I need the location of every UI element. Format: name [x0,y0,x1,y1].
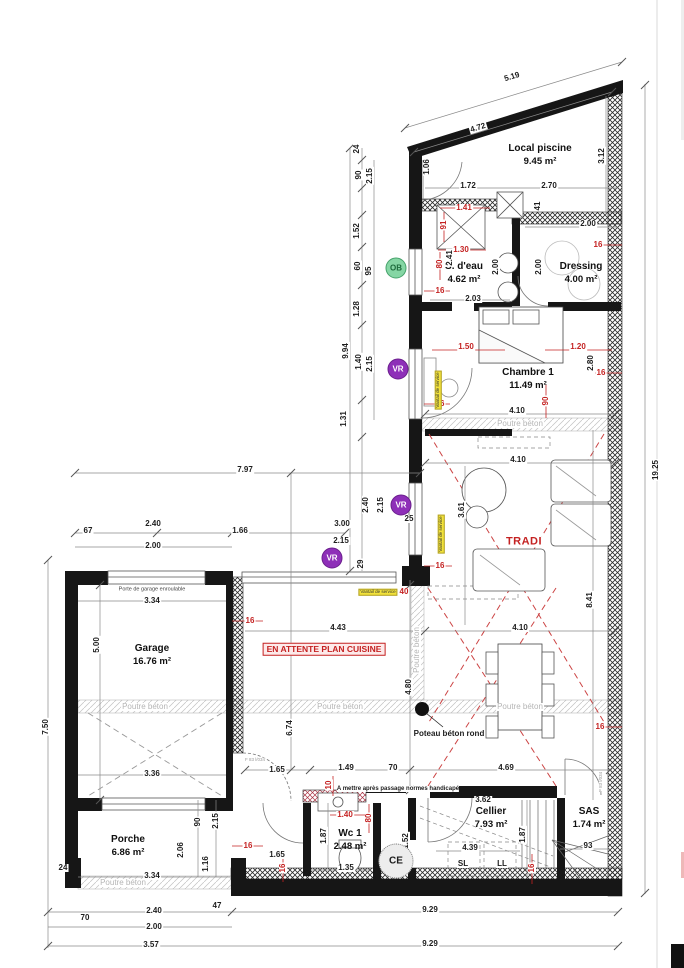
room-label: SAS1.74 m² [573,806,606,830]
concrete-post-note: Poteau béton rond [414,730,485,738]
dimension-label: 90 [355,170,363,181]
dimension-label: 1.65 [268,851,286,859]
beam-label: Poutre béton [316,703,364,711]
dimension-label: 4.80 [405,678,413,696]
room-area: 4.62 m² [445,273,483,285]
red-dimension-label: 16 [243,842,254,850]
dimension-label: 9.94 [342,342,350,360]
dimension-label: 9.29 [421,906,439,914]
dimension-label: 2.15 [366,355,374,373]
dimension-label: 4.39 [461,844,479,852]
dimension-label: 25 [404,515,415,523]
dimension-label: 5.19 [502,71,521,84]
red-dimension-label: 16 [435,562,446,570]
accessibility-note: A mettre après passage normes handicapé [337,786,459,792]
dimension-label: 1.06 [423,158,431,176]
room-name: Porche [111,834,145,847]
dimension-label: 7.50 [42,718,50,736]
dimension-label: 2.40 [362,496,370,514]
dimension-label: 4.69 [497,764,515,772]
room-name: Wc 1 [334,828,367,841]
dimension-label: 3.57 [142,941,160,949]
dimension-label: 93 [583,842,594,850]
dimension-label: 2.70 [540,182,558,190]
dimension-label: 2.15 [332,537,350,545]
dimension-label: 1.35 [337,864,355,872]
dimension-label: 2.80 [587,354,595,372]
room-area: 2.48 m² [334,840,367,852]
room-name: SAS [573,806,606,819]
beam-label: Poutre béton [413,626,421,674]
dimension-label: 95 [365,266,373,277]
red-dimension-label: 1.50 [457,343,475,351]
dimension-label: 19.25 [652,459,660,481]
dimension-label: 4.72 [468,122,487,135]
dimension-label: 24 [353,144,361,155]
garage-door-note: Porte de garage enroulable [119,587,186,593]
dimension-label: 2.03 [464,295,482,303]
red-dimension-label: 80 [436,259,444,270]
dimension-label: 3.61 [458,501,466,519]
red-dimension-label: 1.20 [569,343,587,351]
room-label: Garage16.76 m² [133,643,171,667]
red-dimension-label: 16 [279,863,287,874]
room-name: Local piscine [508,143,571,156]
dimension-label: 67 [83,527,94,535]
vr-badge: VR [322,548,343,569]
dimension-label: 2.00 [145,923,163,931]
dimension-label: 1.87 [320,827,328,845]
dimension-label: 3.36 [143,770,161,778]
beam-label: Poutre béton [496,420,544,428]
dimension-label: 2.15 [366,167,374,185]
dimension-label: 47 [212,902,223,910]
room-label: Local piscine9.45 m² [508,143,571,167]
red-dimension-label: 1.41 [455,204,473,212]
room-label: Dressing4.00 m² [560,261,603,285]
room-area: 4.00 m² [560,273,603,285]
dimension-label: 4.43 [329,624,347,632]
room-name: Garage [133,643,171,656]
red-dimension-label: 16 [596,369,607,377]
red-dimension-label: 16 [435,287,446,295]
room-name: Dressing [560,261,603,274]
red-dimension-label: 80 [365,813,373,824]
dimension-label: 60 [354,261,362,272]
dimension-label: 24 [58,864,69,872]
dimension-label: 2.15 [212,812,220,830]
dimension-label: 1.65 [268,766,286,774]
dimension-label: 8.41 [586,591,594,609]
red-dimension-label: 16 [528,863,536,874]
door-code: F 83 l/034 [245,758,265,763]
dimension-label: 70 [80,914,91,922]
red-dimension-label: 16 [593,241,604,249]
red-dimension-label: 16 [245,617,256,625]
tradi-note: TRADI [506,537,542,548]
beam-label: Poutre béton [496,703,544,711]
room-label: Porche6.86 m² [111,834,145,858]
ce-badge: CE [379,844,414,879]
door-leaf-tag: Vantail de service [435,370,442,409]
red-dimension-label: 91 [440,220,448,231]
room-area: 7.93 m² [475,818,508,830]
dimension-label: 4.10 [508,407,526,415]
dimension-label: 4.10 [511,624,529,632]
dimension-label: 3.00 [333,520,351,528]
dimension-label: 1.40 [355,353,363,371]
room-area: 6.86 m² [111,846,145,858]
dimension-label: 41 [534,201,542,212]
dimension-label: 7.97 [236,466,254,474]
door-leaf-tag: Vantail de service [438,514,445,553]
dimension-label: 3.34 [143,597,161,605]
dimension-label: 2.40 [144,520,162,528]
dimension-label: 2.00 [144,542,162,550]
dimension-label: 2.40 [145,907,163,915]
dimension-label: 29 [357,559,365,570]
vr-badge: VR [388,359,409,380]
room-name: Cellier [475,806,508,819]
dimension-label: 1.72 [459,182,477,190]
red-dimension-label: 10 [325,780,333,791]
dimension-label: 70 [388,764,399,772]
dimension-label: 3.62 [474,796,492,804]
door-leaf-tag: Vantail de service [358,589,397,596]
dimension-label: 2.00 [579,220,597,228]
dimension-label: 9.29 [421,940,439,948]
red-dimension-label: 1.40 [336,811,354,819]
dimension-label: 1.87 [519,826,527,844]
room-area: 11.49 m² [502,379,554,391]
plan-labels: Local piscine9.45 m²S. d'eau4.62 m²Dress… [0,0,684,968]
dimension-label: 2.00 [492,258,500,276]
red-dimension-label: 90 [542,396,550,407]
room-label: Wc 12.48 m² [334,828,367,852]
red-dimension-label: 40 [399,588,410,596]
appliance-label: SL [457,860,469,868]
room-area: 16.76 m² [133,655,171,667]
door-code: P 83 l/034 [599,772,604,792]
appliance-label: LL [496,860,508,868]
red-dimension-label: 1.30 [452,246,470,254]
dimension-label: 2.00 [535,258,543,276]
ob-badge: OB [386,258,407,279]
dimension-label: 90 [194,817,202,828]
dimension-label: 1.28 [353,300,361,318]
room-area: 1.74 m² [573,818,606,830]
room-label: Cellier7.93 m² [475,806,508,830]
dimension-label: 2.06 [177,841,185,859]
dimension-label: 1.31 [340,410,348,428]
dimension-label: 1.66 [231,527,249,535]
beam-label: Poutre béton [121,703,169,711]
floor-plan-page: Local piscine9.45 m²S. d'eau4.62 m²Dress… [0,0,684,968]
dimension-label: 6.74 [286,719,294,737]
dimension-label: 1.52 [353,222,361,240]
vr-badge: VR [391,495,412,516]
kitchen-pending-note: EN ATTENTE PLAN CUISINE [263,643,386,656]
dimension-label: 1.16 [202,855,210,873]
red-dimension-label: 16 [595,723,606,731]
room-label: Chambre 111.49 m² [502,367,554,391]
room-name: Chambre 1 [502,367,554,380]
dimension-label: 3.12 [598,147,606,165]
dimension-label: 4.10 [509,456,527,464]
dimension-label: 2.15 [377,496,385,514]
dimension-label: 5.00 [93,636,101,654]
dimension-label: 1.49 [337,764,355,772]
beam-label: Poutre béton [99,879,147,887]
room-area: 9.45 m² [508,155,571,167]
